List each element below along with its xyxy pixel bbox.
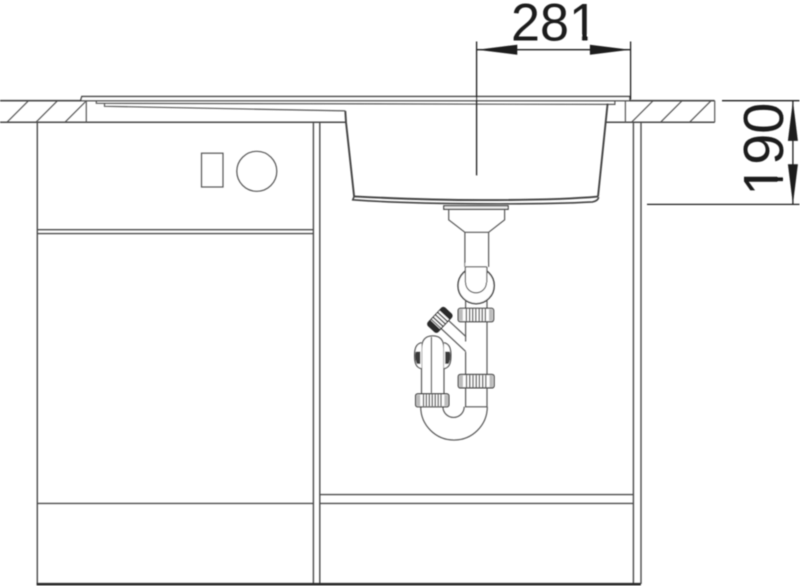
svg-text:281: 281 (511, 0, 598, 52)
svg-text:190: 190 (732, 103, 796, 196)
